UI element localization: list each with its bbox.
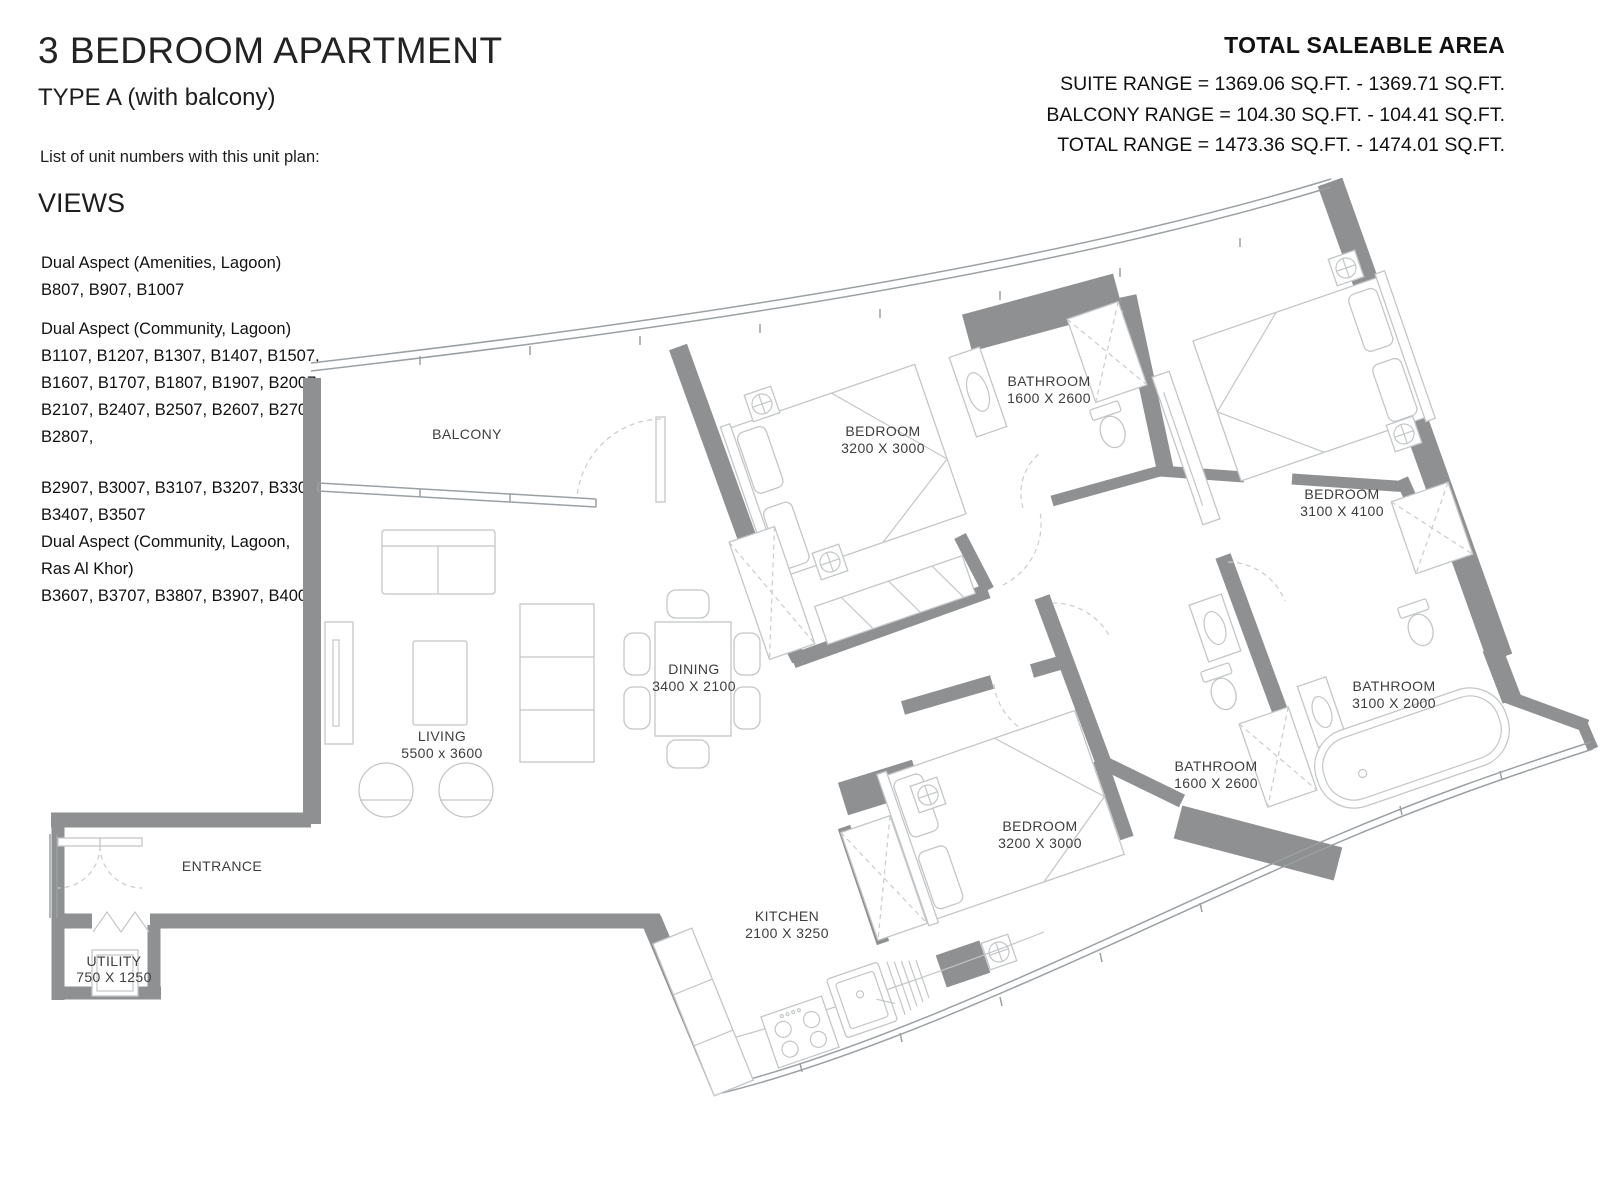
toilet (1089, 401, 1132, 452)
balcony-door-arc (577, 419, 661, 497)
floor-plan-svg: BALCONY LIVING 5500 x 3600 DINING 3400 X… (0, 0, 1600, 1200)
bedroom1-label: BEDROOM (845, 423, 920, 439)
entrance-label: ENTRANCE (182, 858, 262, 874)
bedroom2-label: BEDROOM (1304, 486, 1379, 502)
living-furniture (325, 530, 594, 817)
bathroom1-label: BATHROOM (1007, 373, 1090, 389)
floor-plan-page: 3 BEDROOM APARTMENT TYPE A (with balcony… (0, 0, 1600, 1200)
bedroom1-dims: 3200 X 3000 (841, 440, 925, 456)
toilet (1200, 663, 1243, 714)
kitchen-dims: 2100 X 3250 (745, 925, 829, 941)
balcony-door-leaf (656, 417, 665, 502)
dining-chair (667, 590, 709, 618)
bedroom3-label: BEDROOM (1002, 818, 1077, 834)
kitchen-sink (826, 950, 932, 1038)
bedroom2-furniture (1152, 250, 1473, 573)
dining-chair (624, 687, 650, 729)
utility-dims: 750 X 1250 (76, 969, 152, 985)
bathroom2-dims: 1600 X 2600 (1174, 775, 1258, 791)
entrance-door-arc (100, 846, 142, 888)
utility-bifold-door (93, 912, 149, 932)
bedroom3-furniture (841, 707, 1126, 970)
bedroom1-door-arc (1003, 512, 1041, 585)
bathroom1-door-arc (1021, 453, 1040, 508)
shelf-unit (520, 604, 594, 762)
stove (761, 996, 839, 1068)
bathroom2-fixtures (1189, 594, 1243, 714)
armchair (359, 763, 413, 817)
toilet (1397, 599, 1440, 650)
dining-label: DINING (668, 661, 719, 677)
shower (1239, 707, 1317, 807)
dining-dims: 3400 X 2100 (652, 678, 736, 694)
bathroom3-label: BATHROOM (1352, 678, 1435, 694)
entrance-door-leaf (58, 838, 100, 846)
bathroom1-dims: 1600 X 2600 (1007, 390, 1091, 406)
bathroom2-label: BATHROOM (1174, 758, 1257, 774)
bed-2 (1192, 271, 1436, 485)
entrance-door-leaf (100, 838, 142, 846)
dining-chair (624, 633, 650, 675)
living-dims: 5500 x 3600 (401, 745, 482, 761)
bedroom2-dims: 3100 X 4100 (1300, 503, 1384, 519)
dining-chair (667, 740, 709, 768)
dining-chair (734, 633, 760, 675)
bathroom-sink (949, 347, 1007, 437)
sofa (382, 530, 495, 594)
bedroom3-dims: 3200 X 3000 (998, 835, 1082, 851)
dining-chair (734, 687, 760, 729)
coffee-table (413, 641, 467, 725)
living-label: LIVING (418, 728, 466, 744)
kitchen-label: KITCHEN (755, 908, 819, 924)
kitchen-cabinet (653, 928, 753, 1096)
armchair (439, 763, 493, 817)
balcony-label: BALCONY (432, 426, 502, 442)
tv-unit (325, 622, 353, 744)
bathroom3-dims: 3100 X 2000 (1352, 695, 1436, 711)
utility-label: UTILITY (87, 953, 142, 969)
